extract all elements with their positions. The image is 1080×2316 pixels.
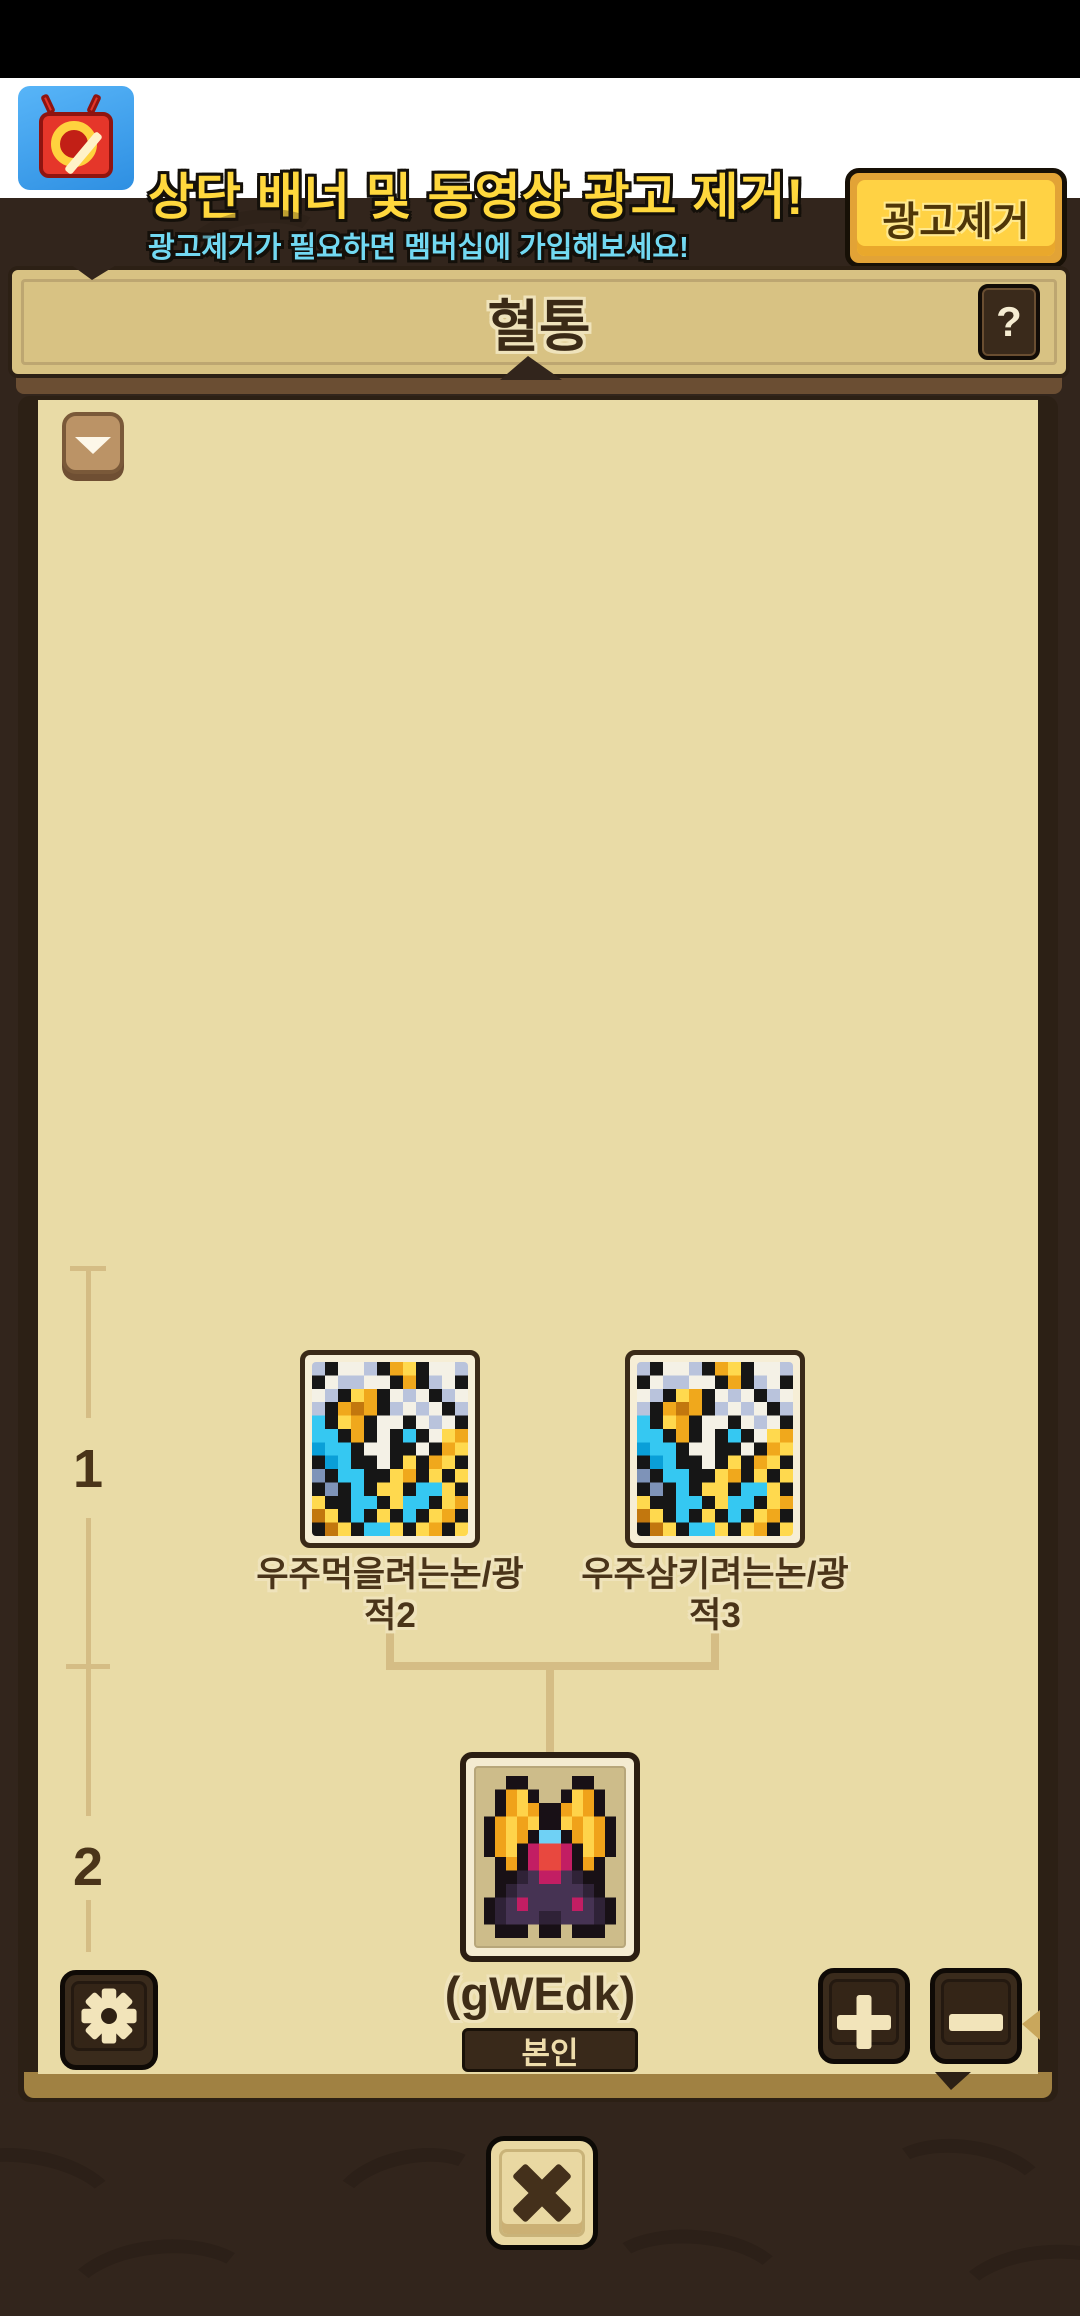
generation-1-label: 1: [58, 1438, 118, 1500]
self-badge: 본인: [462, 2028, 638, 2072]
parent-1-name-line1: 우주먹을려는논/광: [205, 1554, 575, 1595]
chevron-down-icon: [75, 437, 111, 454]
tree-connector: [546, 1662, 554, 1756]
ad-banner[interactable]: 상단 배너 및 동영상 광고 제거! 광고제거가 필요하면 멤버십에 가입해보세…: [0, 78, 1080, 198]
torn-edge-decoration: [500, 356, 562, 380]
parent-2-name: 우주삼키려는논/광 적3: [530, 1554, 900, 1636]
self-creature-portrait: [474, 1766, 626, 1948]
parent-1-name-line2: 적2: [205, 1595, 575, 1636]
gear-icon: [80, 1987, 138, 2045]
self-badge-label: 본인: [521, 2028, 578, 2073]
settings-button-face: [71, 1981, 147, 2051]
parent-creature-portrait: [637, 1362, 793, 1536]
background-doodle: [0, 2135, 126, 2255]
parent-creature-pixel-art: [312, 1362, 468, 1536]
parent-1-name: 우주먹을려는논/광 적2: [205, 1554, 575, 1636]
self-name: (gWEdk): [320, 1966, 760, 2021]
prohibition-slash-icon: [64, 131, 103, 175]
generation-rail-segment: [86, 1518, 91, 1668]
parent-card-1[interactable]: [300, 1350, 480, 1548]
zoom-in-button[interactable]: [818, 1968, 910, 2064]
generation-rail-segment: [86, 1900, 91, 1952]
parent-2-name-line2: 적3: [530, 1595, 900, 1636]
question-mark-icon: ?: [996, 298, 1022, 346]
background-doodle: [946, 2238, 1080, 2316]
status-bar: [0, 0, 1080, 78]
no-ads-tv-icon: [18, 86, 134, 190]
zoom-out-button[interactable]: [930, 1968, 1022, 2064]
panel-bottom-strip: [24, 2072, 1052, 2098]
background-doodle: [596, 2222, 794, 2316]
parent-2-name-line1: 우주삼키려는논/광: [530, 1554, 900, 1595]
generation-rail-segment: [86, 1266, 91, 1418]
generation-dropdown-button[interactable]: [62, 412, 124, 474]
generation-2-label: 2: [58, 1836, 118, 1898]
zoom-out-button-face: [941, 1979, 1011, 2045]
remove-ads-button-face: 광고제거: [857, 180, 1055, 256]
prohibition-ring-icon: [51, 121, 97, 167]
plus-icon: [857, 1995, 872, 2049]
bloodline-screen: 상단 배너 및 동영상 광고 제거! 광고제거가 필요하면 멤버십에 가입해보세…: [0, 0, 1080, 2316]
torn-edge-decoration: [70, 264, 118, 280]
remove-ads-button[interactable]: 광고제거: [845, 168, 1067, 268]
self-card[interactable]: [460, 1752, 640, 1962]
parent-creature-portrait: [312, 1362, 468, 1536]
background-doodle: [322, 2134, 497, 2255]
background-doodle: [55, 2230, 265, 2316]
remove-ads-button-label: 광고제거: [882, 189, 1029, 247]
torn-edge-decoration: [1022, 2010, 1040, 2040]
help-button[interactable]: ?: [978, 284, 1040, 360]
background-doodle: [875, 2129, 1056, 2242]
generation-rail-segment: [86, 1669, 91, 1816]
parent-card-2[interactable]: [625, 1350, 805, 1548]
torn-edge-decoration: [935, 2072, 971, 2090]
settings-button[interactable]: [60, 1970, 158, 2070]
close-button[interactable]: [486, 2136, 598, 2250]
self-creature-pixel-art: [484, 1776, 616, 1938]
parent-creature-pixel-art: [637, 1362, 793, 1536]
tv-body-icon: [39, 112, 113, 178]
minus-icon: [949, 2014, 1003, 2031]
